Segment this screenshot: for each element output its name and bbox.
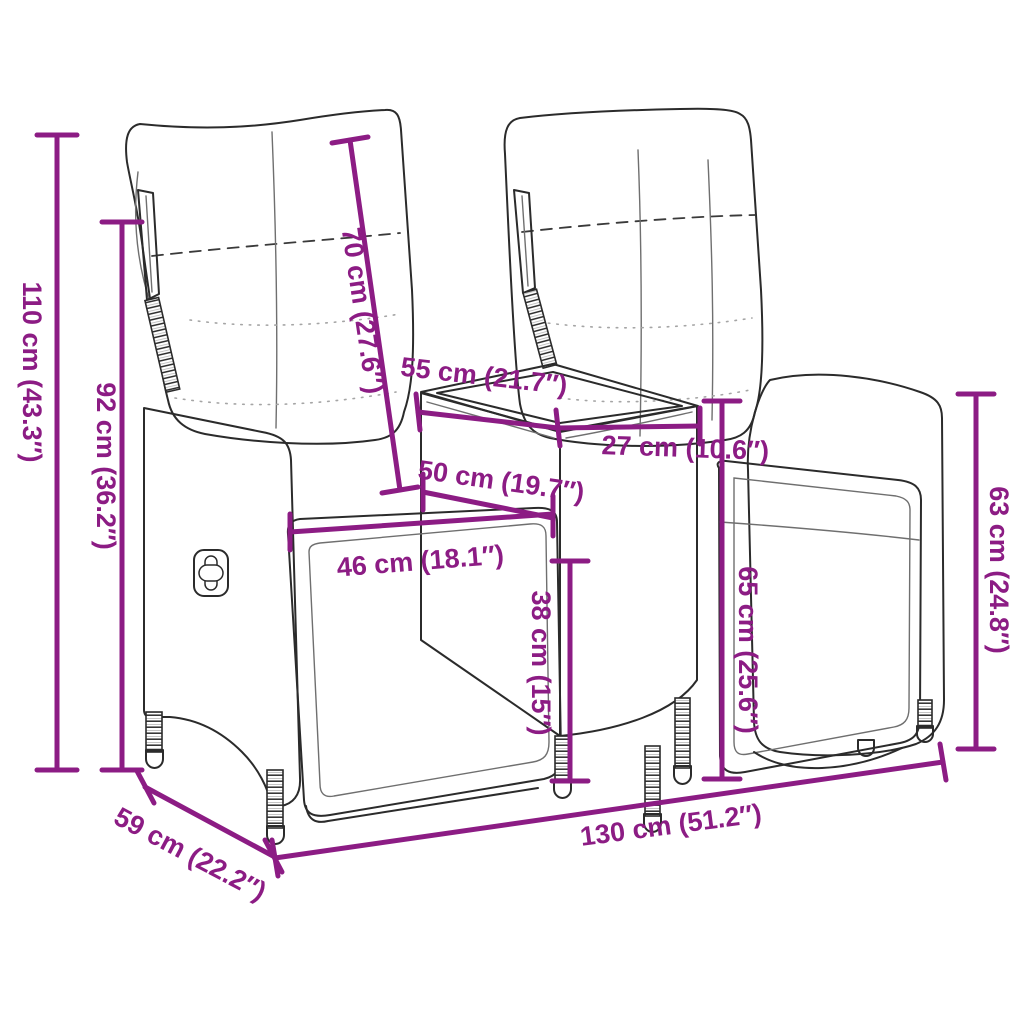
left-front-leg <box>267 770 283 828</box>
table-right-leg <box>675 698 690 768</box>
dim-table-width-label: 27 cm (10.6″) <box>601 430 769 466</box>
right-chair-right-leg <box>918 700 932 728</box>
dim-table-height-label: 65 cm (25.6″) <box>733 566 763 734</box>
dim-overall-height-label: 110 cm (43.3″) <box>17 281 47 462</box>
diagram-canvas: 110 cm (43.3″) 92 cm (36.2″) 70 cm (27.6… <box>0 0 1024 1024</box>
dim-backrest-height-label: 92 cm (36.2″) <box>91 382 121 550</box>
product-dimension-diagram: 110 cm (43.3″) 92 cm (36.2″) 70 cm (27.6… <box>0 0 1024 1024</box>
left-rear-leg <box>146 712 162 752</box>
dim-seat-height-label: 38 cm (15″) <box>526 590 556 735</box>
dim-side-height-label: 63 cm (24.8″) <box>984 486 1014 654</box>
left-recline-knob <box>194 550 228 596</box>
